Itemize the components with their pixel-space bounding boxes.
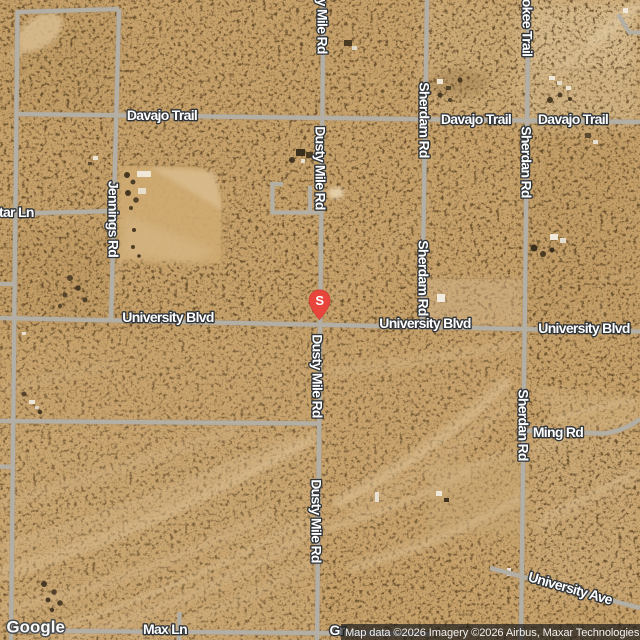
svg-text:Sherdam Rd: Sherdam Rd (416, 240, 432, 316)
svg-text:Dusty Mile Rd: Dusty Mile Rd (313, 126, 329, 210)
svg-text:Davajo Trail: Davajo Trail (441, 111, 511, 127)
svg-text:Davajo Trail: Davajo Trail (538, 111, 608, 127)
svg-text:University Blvd: University Blvd (122, 309, 214, 325)
svg-text:S: S (315, 293, 324, 308)
svg-text:Ming Rd: Ming Rd (533, 424, 583, 440)
svg-text:Sherdan Rd: Sherdan Rd (516, 389, 532, 461)
svg-text:Max Ln: Max Ln (143, 621, 187, 637)
svg-text:Dusty Mile Rd: Dusty Mile Rd (309, 479, 325, 563)
svg-text:University Blvd: University Blvd (379, 315, 471, 331)
svg-text:University Blvd: University Blvd (538, 320, 630, 336)
svg-text:Davajo Trail: Davajo Trail (127, 107, 197, 123)
svg-text:Jennings Rd: Jennings Rd (106, 181, 122, 257)
svg-text:Cherokee Trail: Cherokee Trail (520, 0, 536, 56)
svg-text:Dusty Mile Rd: Dusty Mile Rd (310, 334, 326, 418)
svg-text:Dusty Mile Rd: Dusty Mile Rd (315, 0, 331, 54)
svg-text:Star Ln: Star Ln (0, 204, 34, 220)
svg-text:Sherdan Rd: Sherdan Rd (519, 126, 535, 198)
svg-text:Google: Google (7, 618, 65, 637)
svg-text:Sherdam Rd: Sherdam Rd (417, 82, 433, 158)
svg-text:Map data ©2026 Imagery ©2026 A: Map data ©2026 Imagery ©2026 Airbus, Max… (345, 627, 640, 639)
